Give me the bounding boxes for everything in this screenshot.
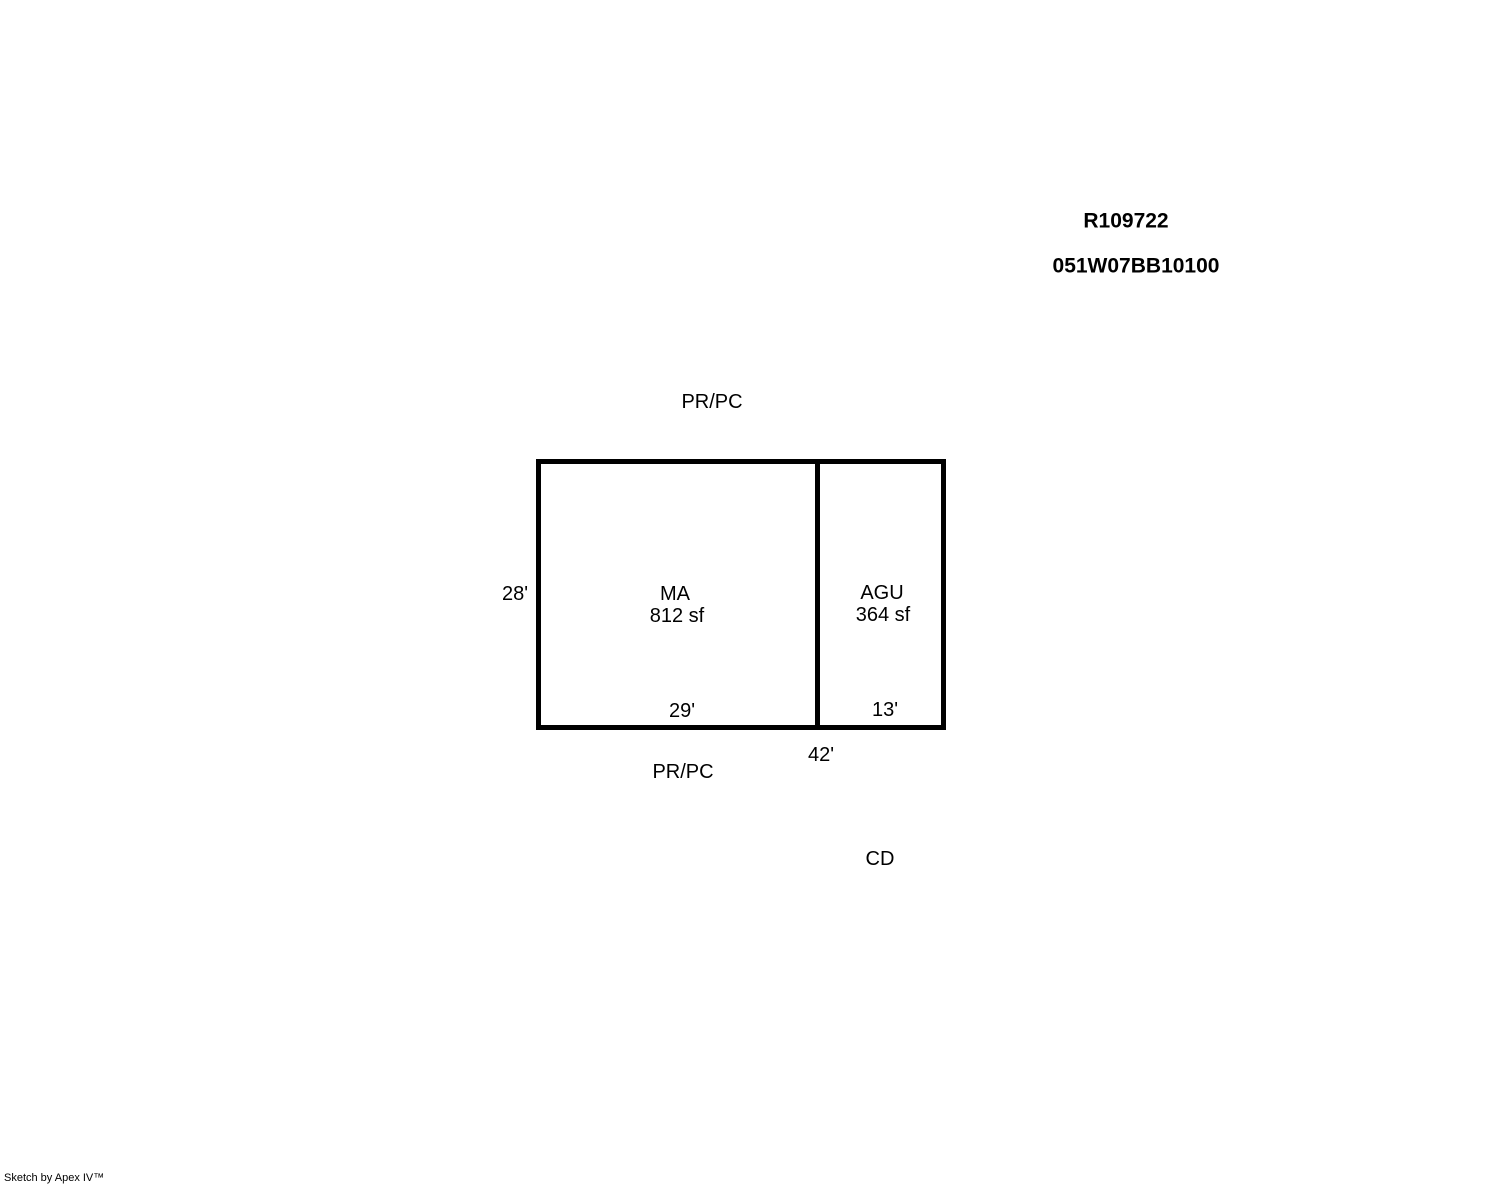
label-cd: CD [866,849,895,869]
sketch-page: R109722 051W07BB10100 PR/PC PR/PC CD MA … [0,0,1488,1190]
section-divider-line [815,459,820,730]
dim-height-left: 28' [502,584,528,604]
record-id: R109722 [1083,211,1168,232]
footer-credit: Sketch by Apex IV™ [4,1172,104,1185]
section-ma-code: MA [660,584,690,604]
dim-ma-width: 29' [669,701,695,721]
label-prpc-top: PR/PC [681,392,742,412]
parcel-id: 051W07BB10100 [1053,256,1220,277]
section-agu-area: 364 sf [856,605,910,625]
dim-total-width: 42' [808,745,834,765]
section-ma-area: 812 sf [650,606,704,626]
dim-agu-width: 13' [872,700,898,720]
section-agu-code: AGU [860,583,903,603]
label-prpc-bottom: PR/PC [652,762,713,782]
